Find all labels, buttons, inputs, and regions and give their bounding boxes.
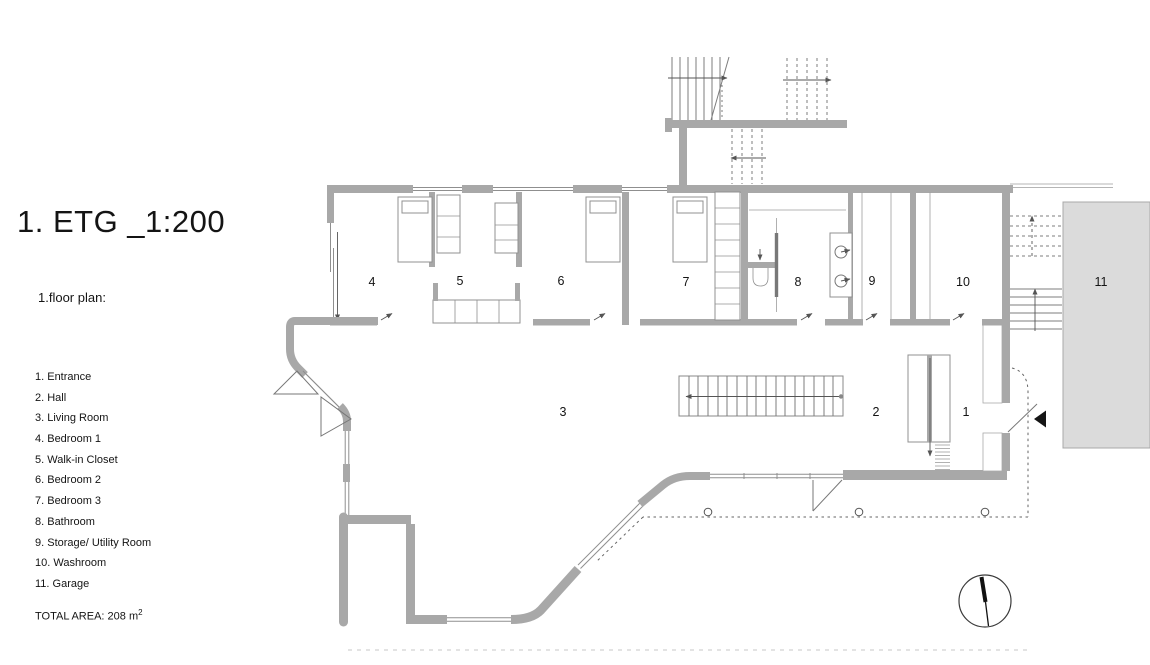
bed-room6 xyxy=(586,197,620,262)
room-label-5: 5 xyxy=(457,274,464,288)
floor-plan-drawing: 4 5 6 7 8 9 10 11 3 2 1 xyxy=(0,0,1150,665)
room-label-8: 8 xyxy=(795,275,802,289)
room-label-10: 10 xyxy=(956,275,970,289)
toilet-partition xyxy=(748,262,775,268)
left-wall-window xyxy=(327,185,338,320)
terrace-columns xyxy=(704,508,989,516)
floor-plan-sheet: 1. ETG _1:200 1.floor plan: 1. Entrance … xyxy=(0,0,1150,665)
vestibule-dashed-stairs xyxy=(731,129,766,184)
garage-area xyxy=(1063,202,1150,448)
walkin-closet-shelves xyxy=(433,195,520,323)
room-label-2: 2 xyxy=(873,405,880,419)
toilet-icon xyxy=(753,268,768,286)
canopy-edge-lines xyxy=(1010,184,1113,188)
utility-partition-lines xyxy=(862,192,930,319)
bed-room7 xyxy=(673,197,707,262)
floor-grate xyxy=(935,445,950,470)
room-label-4: 4 xyxy=(369,275,376,289)
hall-wardrobe xyxy=(908,355,950,470)
bottom-wall xyxy=(710,473,1007,511)
entrance-arrow-icon xyxy=(1034,411,1046,428)
terrace-curved-wall xyxy=(274,321,378,515)
vestibule-walls xyxy=(665,118,847,186)
shower-screen xyxy=(775,233,778,297)
room-label-9: 9 xyxy=(869,274,876,288)
bathroom-fixtures xyxy=(748,210,852,312)
room-label-6: 6 xyxy=(558,274,565,288)
diagonal-wall xyxy=(511,476,710,620)
upper-dashed-stairs xyxy=(783,58,831,120)
main-staircase xyxy=(679,376,843,416)
garage-stairs xyxy=(1010,216,1062,331)
top-exterior-stairs xyxy=(668,57,729,120)
north-compass-icon xyxy=(959,575,1011,627)
room-label-11: 11 xyxy=(1095,275,1108,289)
lower-left-wing xyxy=(343,517,513,622)
room-label-3: 3 xyxy=(560,405,567,419)
terrace-door-swing xyxy=(813,480,842,511)
right-wall-entrance xyxy=(983,185,1046,471)
room-label-7: 7 xyxy=(683,275,690,289)
bed-room4 xyxy=(398,197,432,262)
room7-shelf-column xyxy=(715,192,740,320)
room-label-1: 1 xyxy=(963,405,970,419)
